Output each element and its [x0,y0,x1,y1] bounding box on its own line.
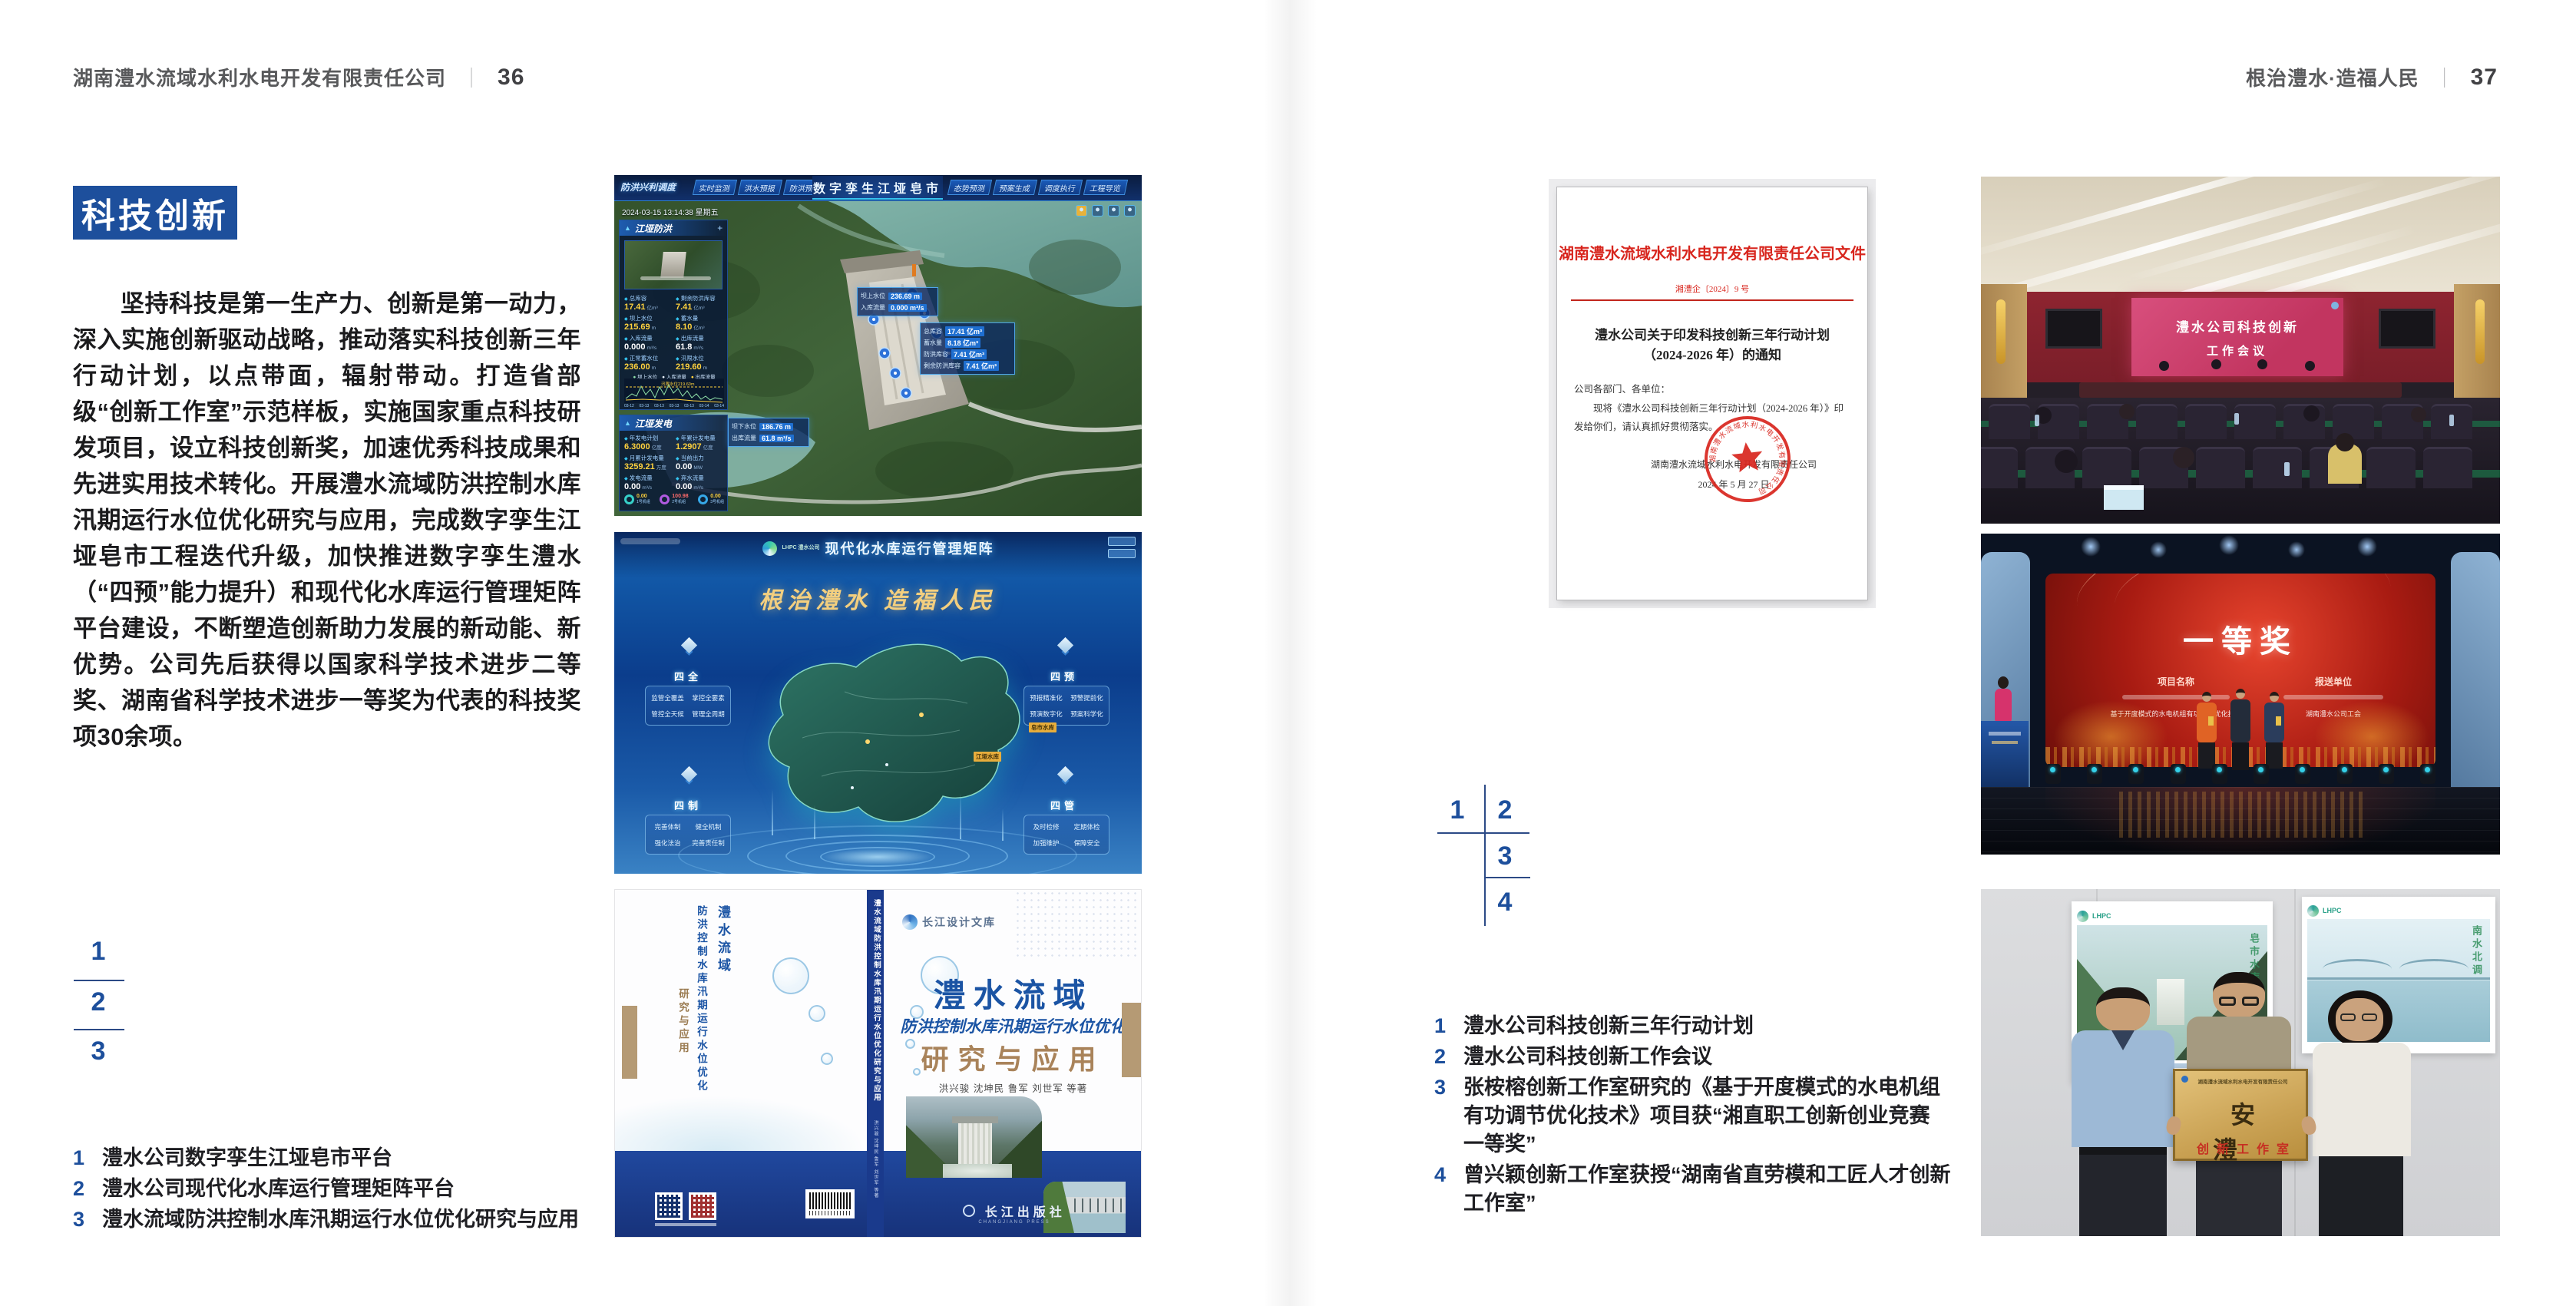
water-bottle [2284,462,2290,476]
group-icon [1057,766,1073,782]
capacity-overlay: 总库容17.41 亿m³ 蓄水量8.18 亿m³ 防洪库容7.41 亿m³ 剩余… [920,322,1015,375]
caption-item: 3澧水流域防洪控制水库汛期运行水位优化研究与应用 [73,1205,626,1234]
lhpc-logo-icon [762,541,777,556]
wave-graphic [615,1096,867,1151]
svg-text:汛限水位219.60m: 汛限水位219.60m [661,381,695,387]
caption-item: 3张桉榕创新工作室研究的《基于开度模式的水电机组有功调节优化技术》项目获“湘直职… [1434,1073,1956,1159]
award-col2-label: 报送单位 [2276,675,2391,688]
host-figure [1995,689,2012,724]
wall-tv [2379,309,2435,349]
group-name: 四全 [665,669,711,683]
dashboard-datetime: 2024-03-15 13:14:38 星期五 [622,206,719,217]
spine-authors: 洪兴骏 沈坤民 鲁军 刘世军 等著 [872,1120,879,1199]
user-icon [1108,205,1119,217]
plaque-subtitle: 创新工作室 [2175,1139,2310,1157]
qr-code [655,1192,683,1220]
winner-orange-jacket [2197,703,2217,742]
left-page-header: 湖南澧水流域水利水电开发有限责任公司 ｜ 36 [73,63,524,91]
page-number-right: 37 [2471,64,2498,91]
tab-project-tour: 工程导览 [1083,180,1128,195]
bubble-graphic [821,1053,833,1065]
tab-flood-forecast: 洪水预报 [738,180,782,195]
water-bottle [2035,415,2039,426]
back-tan-block [622,1006,637,1079]
document-salutation: 公司各部门、各单位： [1574,381,1670,395]
wall-seam [2294,889,2296,1236]
page-fold [1263,0,1317,1306]
unit-gauges: 0.001号机组 100.982号机组 0.003号机组 [624,494,724,504]
group-items: 预报精准化预警提前化 预演数字化预案科学化 [1023,686,1109,726]
page-number-left: 36 [498,64,524,91]
figure-marker-2: 2 [83,987,114,1017]
bubble-graphic [809,1005,825,1022]
document-number: 湘澧企〔2024〕9 号 [1557,283,1867,295]
tabs-left: 实时监测 洪水预报 防洪预警 [694,180,826,195]
presenter-head [2211,359,2221,369]
wall-lamp [1996,299,2006,364]
figure-book-cover: 澧水流域 防洪控制水库汛期运行水位优化 研究与应用 澧水流域防洪控制水库汛期运行… [614,889,1142,1238]
group-name: 四预 [1041,669,1087,683]
publisher-name: 长江出版社 [985,1206,1066,1219]
right-page-header: 根治澧水·造福人民 ｜ 37 [2246,63,2498,91]
audience-head [2055,450,2078,473]
presenter-head [2257,359,2267,369]
library-logo: 长江设计文库 [902,914,996,930]
cover-authors: 洪兴骏 沈坤民 鲁军 刘世军 等著 [884,1080,1142,1095]
light-pillar [772,789,773,835]
audience-head [2336,433,2354,451]
cover-title-main: 澧水流域 [884,970,1142,1017]
award-title: 一等奖 [2045,617,2435,661]
cover-photo-dam [906,1096,1042,1178]
photo-award-ceremony: 一等奖 项目名称 报送单位 基于开度模式的水电机组有功调节优化技术 湖南澧水公司… [1981,534,2500,855]
presenter-suit [2230,699,2250,742]
center-man-head [2213,972,2265,1018]
photo-studio-plaque: LHPC 皂市水库 LHPC 南水北调 [1981,889,2500,1236]
dashboard-title: 数字孪生江垭皂市 [812,176,943,200]
book-spine: 澧水流域防洪控制水库汛期运行水位优化研究与应用 洪兴骏 沈坤民 鲁军 刘世军 等… [867,890,884,1238]
tab-situation-forecast: 态势预测 [947,180,992,195]
caption-item: 2澧水公司科技创新工作会议 [1434,1043,1956,1071]
audience-head [2303,405,2320,422]
tab-plan-generation: 预案生成 [993,180,1037,195]
presenter-head [2159,361,2169,371]
screen-logo-dot [2331,302,2339,309]
figure-marker-1: 1 [83,937,114,967]
qr-code [689,1192,716,1220]
chair-row [1989,404,2472,439]
right-captions: 1澧水公司科技创新三年行动计划 2澧水公司科技创新工作会议 3张桉榕创新工作室研… [1434,1012,1956,1220]
cover-title-sub: 防洪控制水库汛期运行水位优化 [884,1014,1142,1037]
official-seal: 湖南澧水流域水利水电开发有限责任公司 [1695,407,1800,511]
podium [1981,721,2029,787]
group-name: 四制 [665,798,711,812]
head-table [2079,382,2402,398]
caption-item: 4曾兴颖创新工作室获授“湖南省直劳模和工匠人才创新工作室” [1434,1161,1956,1218]
presenter-head [2305,361,2315,371]
stage-light [2357,537,2377,557]
presenter-head [2236,689,2245,699]
document-header: 湖南澧水流域水利水电开发有限责任公司文件 [1557,241,1867,263]
lhpc-logo [2077,911,2088,922]
water-bottle [2449,415,2454,426]
marker-grid-hline [1437,832,1529,834]
figure-digital-twin-screenshot: 防洪兴利调度 实时监测 洪水预报 防洪预警 数字孪生江垭皂市 态势预测 预案生成… [614,175,1142,516]
figure-marker-4: 4 [1490,888,1520,918]
user-icons [1076,205,1136,217]
publisher-logo: 长江出版社 CHANGJIANG PRESS [937,1202,1091,1225]
mode-label: 防洪兴利调度 [620,180,676,193]
tab-dispatch-execute: 调度执行 [1038,180,1083,195]
marker-grid-hline [1484,877,1530,878]
figure-marker-3: 3 [83,1037,114,1066]
trophy [2208,716,2214,726]
barcode [805,1189,855,1218]
reservoir-label-jiangya: 江垭水库 [974,752,1001,762]
brochure-spread: 湖南澧水流域水利水电开发有限责任公司 ｜ 36 科技创新 坚持科技是第一生产力、… [0,0,2576,1306]
document-paper: 湖南澧水流域水利水电开发有限责任公司文件 湘澧企〔2024〕9 号 澧水公司关于… [1557,187,1867,600]
flood-panel-header: ▲江垭防洪+ [620,220,727,236]
stage-floor [1981,787,2500,855]
dashboard-topbar: 防洪兴利调度 实时监测 洪水预报 防洪预警 数字孪生江垭皂市 态势预测 预案生成… [614,175,1142,201]
matrix-title: 现代化水库运行管理矩阵 [825,538,994,558]
spine-title: 澧水流域防洪控制水库汛期运行水位优化研究与应用 [871,899,881,1103]
user-icon [1092,205,1103,217]
marker-grid-vline [1484,785,1486,926]
power-panel: ▲江垭发电 ◆ 年发电计划6.3000亿度 ◆ 年累计发电量1.2907亿度 ◆… [619,415,728,511]
matrix-slogan: 根治澧水 造福人民 [614,581,1142,615]
poster-calligraphy: 南水北调 [2469,925,2484,977]
basin-map [729,623,1029,853]
tissue-box [2104,485,2144,510]
water-level-chart: 汛限水位219.60m [624,379,724,403]
marker-divider [74,980,124,981]
qr-caption-bar [655,1223,716,1226]
library-logo-icon [902,914,918,930]
downstream-overlay: 坝下水位186.76 m 出库流量61.8 m³/s [728,418,809,447]
power-stats: ◆ 年发电计划6.3000亿度 ◆ 年累计发电量1.2907亿度 ◆ 月累计发电… [624,434,724,494]
figure-official-document: 湖南澧水流域水利水电开发有限责任公司文件 湘澧企〔2024〕9 号 澧水公司关于… [1549,179,1876,608]
woman-shirt [2313,1043,2411,1156]
upstream-overlay: 坝上水位236.69 m 入库流量0.000 m³/s [857,287,938,316]
flood-panel: ▲江垭防洪+ ◆ 总库容17.41亿m³ ◆ 剩余防洪库容7.41亿m³ ◆ 坝… [619,220,728,410]
stage-light [2081,537,2101,557]
left-man-polo [2072,1030,2174,1147]
group-items: 监管全覆盖掌控全要素 管控全天候管理全周期 [645,686,731,726]
publisher-name-en: CHANGJIANG PRESS [937,1220,1091,1225]
cover-title-tail: 研究与应用 [884,1037,1142,1077]
photo-innovation-meeting: 澧水公司科技创新 工作会议 [1981,177,2500,524]
innovation-studio-plaque: 湖南澧水流域水利水电开发有限责任公司 安澧 创新工作室 [2173,1069,2308,1161]
tabs-right: 态势预测 预案生成 调度执行 工程导览 [949,180,1126,195]
back-title-main: 澧水流域 [713,905,732,976]
screen-line1: 澧水公司科技创新 [2131,316,2343,336]
caption-item: 2澧水公司现代化水库运行管理矩阵平台 [73,1175,626,1203]
woman-pants [2319,1156,2403,1236]
header-divider: ｜ [2435,63,2455,91]
dam-video-thumbnail [624,240,723,289]
screen-line2: 工作会议 [2131,342,2343,359]
award-col1-label: 项目名称 [2118,675,2234,688]
company-name: 湖南澧水流域水利水电开发有限责任公司 [73,63,446,91]
woman-head [2336,998,2383,1041]
award-text-bar [2122,695,2230,699]
audience-head [2411,407,2426,422]
group-icon [681,637,697,653]
library-label: 长江设计文库 [922,914,996,930]
section-title: 科技创新 [73,186,237,240]
brand-label: LHPC 澧水公司 [782,545,820,551]
stage-fixtures [2045,764,2435,784]
user-icon [1124,205,1136,217]
figure-matrix-platform-screenshot: LHPC 澧水公司 现代化水库运行管理矩阵 根治澧水 造福人民 皂市水库 江垭水… [614,532,1142,874]
winner-head [2270,692,2279,702]
group-name: 四管 [1041,798,1087,812]
caption-item: 1澧水公司数字孪生江垭皂市平台 [73,1144,626,1172]
wall-tv [2045,309,2102,349]
figure-marker-2: 2 [1490,795,1520,825]
reservoir-label-zaoshi: 皂市水库 [1029,722,1057,732]
host-head [1998,676,2009,689]
belt [2079,1147,2167,1155]
chart-x-ticks: 03-1203-1303-1303-1303-1303-1403-14 [624,404,724,408]
figure-marker-1: 1 [1442,795,1473,825]
publisher-icon [963,1205,975,1217]
left-man-pants [2079,1155,2167,1236]
slogan-text: 根治澧水·造福人民 [2246,63,2419,91]
group-icon [1057,637,1073,653]
stage-light [2150,541,2167,558]
header-divider: ｜ [461,63,482,91]
tab-realtime-monitor: 实时监测 [693,180,737,195]
matrix-header: LHPC 澧水公司 现代化水库运行管理矩阵 [614,538,1142,558]
document-rule [1571,299,1853,301]
dot-pattern [1014,890,1142,960]
left-captions: 1澧水公司数字孪生江垭皂市平台 2澧水公司现代化水库运行管理矩阵平台 3澧水流域… [73,1144,626,1236]
marker-divider [74,1029,124,1030]
stage-light [2288,541,2305,558]
wall-lamp [2475,299,2485,364]
power-panel-header: ▲江垭发电 [620,415,727,431]
stage-light [2219,535,2239,555]
winner-head [2202,692,2211,702]
award-text-bar [2283,695,2383,699]
left-man-head [2096,987,2150,1032]
ripple-core [820,847,935,867]
plaque-logo-dot [2181,1076,2188,1083]
figure-marker-3: 3 [1490,841,1520,871]
caption-item: 1澧水公司科技创新三年行动计划 [1434,1012,1956,1040]
flood-stats: ◆ 总库容17.41亿m³ ◆ 剩余防洪库容7.41亿m³ ◆ 坝上水位215.… [624,294,724,374]
lhpc-logo [2307,905,2319,917]
trophy [2276,716,2281,726]
front-tan-block [1122,1003,1142,1077]
user-icon [1076,205,1087,217]
back-title-tail: 研究与应用 [675,988,690,1056]
audience-head [2119,404,2135,419]
back-title-sub: 防洪控制水库汛期运行水位优化 [693,905,709,1093]
winner-blue-jacket [2264,703,2284,742]
bubble-graphic [772,957,809,994]
document-title: 澧水公司关于印发科技创新三年行动计划 （2024-2026 年）的通知 [1557,326,1867,365]
water-bottle [2234,413,2239,425]
audience-head [2173,447,2194,468]
group-icon [681,766,697,782]
chair-row [1981,447,2472,488]
section-body-text: 坚持科技是第一生产力、创新是第一动力，深入实施创新驱动战略，推动落实科技创新三年… [73,286,581,755]
plaque-org-line: 湖南澧水流域水利水电开发有限责任公司 [2175,1077,2310,1085]
